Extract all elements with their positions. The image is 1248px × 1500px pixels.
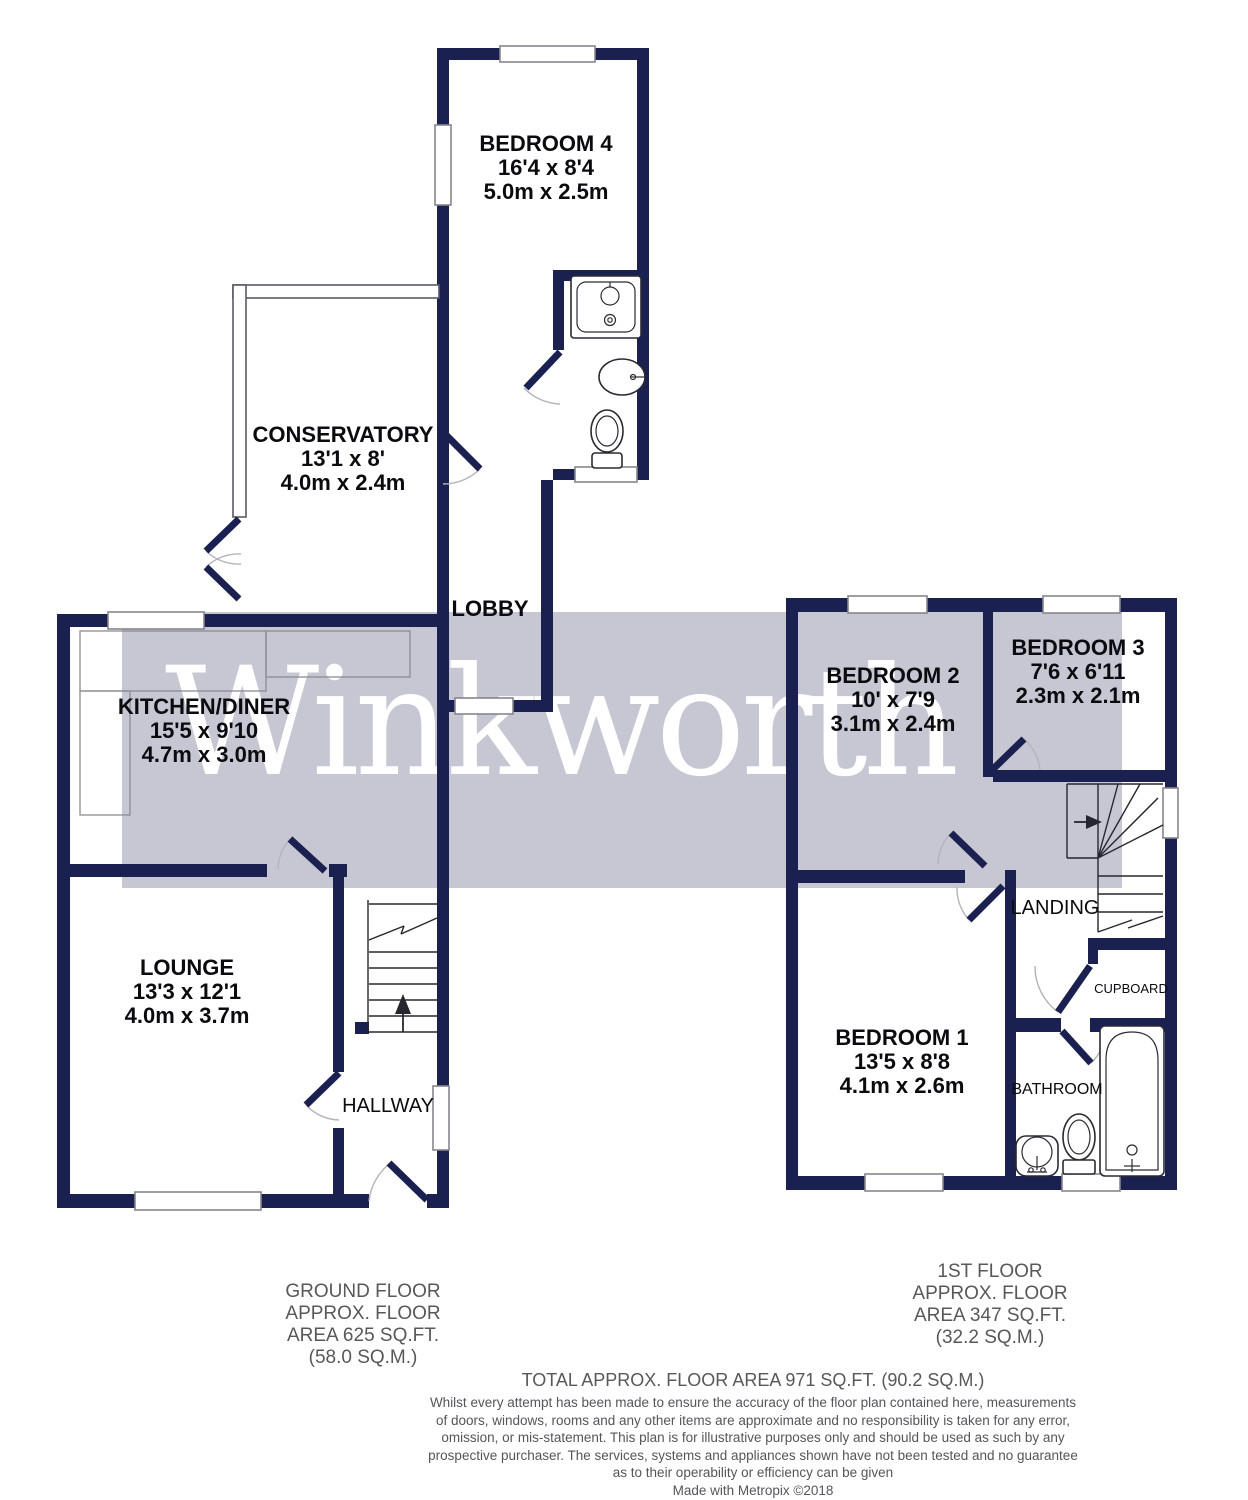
room-label-bedroom4: BEDROOM 4 16'4 x 8'4 5.0m x 2.5m [479,132,612,204]
disclaimer-line: of doors, windows, rooms and any other i… [428,1412,1078,1430]
room-dims-imperial: 16'4 x 8'4 [479,156,612,180]
room-label-lobby: LOBBY [452,597,529,621]
room-name: LOBBY [452,597,529,621]
ground-stairs-icon [368,900,437,1034]
room-label-bathroom: BATHROOM [1011,1078,1102,1102]
room-label-bedroom3: BEDROOM 3 7'6 x 6'11 2.3m x 2.1m [1011,636,1144,708]
room-name: BEDROOM 4 [479,132,612,156]
first-floor-area-note: 1ST FLOOR APPROX. FLOOR AREA 347 SQ.FT. … [912,1261,1067,1349]
disclaimer-line: prospective purchaser. The services, sys… [428,1447,1078,1465]
bathtub-icon [1100,1026,1164,1176]
area-note-line: GROUND FLOOR [285,1281,440,1303]
room-name: BEDROOM 3 [1011,636,1144,660]
room-name: KITCHEN/DINER [118,695,290,719]
room-name: BATHROOM [1011,1078,1102,1102]
room-dims-imperial: 13'3 x 12'1 [125,980,250,1004]
room-name: CONSERVATORY [253,423,434,447]
disclaimer-text: Whilst every attempt has been made to en… [428,1394,1078,1499]
bathroom-toilet-icon [1063,1114,1095,1174]
room-dims-imperial: 15'5 x 9'10 [118,719,290,743]
room-dims-imperial: 13'5 x 8'8 [835,1050,968,1074]
area-note-line: APPROX. FLOOR [912,1283,1067,1305]
room-label-landing: LANDING [1011,896,1100,920]
shower-room-toilet-icon [591,410,623,468]
room-dims-metric: 5.0m x 2.5m [479,180,612,204]
area-note-line: AREA 625 SQ.FT. [285,1325,440,1347]
ground-floor-windows [108,46,637,1210]
room-name: LOUNGE [125,956,250,980]
area-note-line: AREA 347 SQ.FT. [912,1305,1067,1327]
disclaimer-line: as to their operability or efficiency ca… [428,1464,1078,1482]
room-label-lounge: LOUNGE 13'3 x 12'1 4.0m x 3.7m [125,956,250,1028]
floor-plan-page: Winkworth [0,0,1248,1500]
disclaimer-line: omission, or mis-statement. This plan is… [428,1429,1078,1447]
credit-line: Made with Metropix ©2018 [428,1482,1078,1500]
room-dims-metric: 2.3m x 2.1m [1011,684,1144,708]
room-name: LANDING [1011,896,1100,920]
room-name: BEDROOM 1 [835,1026,968,1050]
ground-floor-area-note: GROUND FLOOR APPROX. FLOOR AREA 625 SQ.F… [285,1281,440,1369]
room-dims-metric: 4.1m x 2.6m [835,1074,968,1098]
total-area-text: TOTAL APPROX. FLOOR AREA 971 SQ.FT. (90.… [522,1370,985,1391]
room-dims-imperial: 13'1 x 8' [253,447,434,471]
room-name: HALLWAY [342,1094,434,1118]
room-dims-metric: 4.7m x 3.0m [118,743,290,767]
room-dims-metric: 4.0m x 3.7m [125,1004,250,1028]
room-dims-imperial: 10' x 7'9 [826,688,959,712]
room-label-bedroom1: BEDROOM 1 13'5 x 8'8 4.1m x 2.6m [835,1026,968,1098]
area-note-line: 1ST FLOOR [912,1261,1067,1283]
area-note-line: (58.0 SQ.M.) [285,1347,440,1369]
room-label-hallway: HALLWAY [342,1094,434,1118]
area-note-line: (32.2 SQ.M.) [912,1327,1067,1349]
room-dims-imperial: 7'6 x 6'11 [1011,660,1144,684]
room-label-kitchen-diner: KITCHEN/DINER 15'5 x 9'10 4.7m x 3.0m [118,695,290,767]
room-label-bedroom2: BEDROOM 2 10' x 7'9 3.1m x 2.4m [826,664,959,736]
area-note-line: APPROX. FLOOR [285,1303,440,1325]
disclaimer-line: Whilst every attempt has been made to en… [428,1394,1078,1412]
room-name: BEDROOM 2 [826,664,959,688]
room-name: CUPBOARD [1094,977,1168,1001]
room-dims-metric: 4.0m x 2.4m [253,471,434,495]
room-dims-metric: 3.1m x 2.4m [826,712,959,736]
room-label-cupboard: CUPBOARD [1094,977,1168,1001]
shower-room-sink-icon [599,359,645,395]
bathroom-sink-icon [1016,1136,1058,1176]
ground-floor-plan [57,46,649,1210]
room-label-conservatory: CONSERVATORY 13'1 x 8' 4.0m x 2.4m [253,423,434,495]
shower-icon [571,276,641,338]
